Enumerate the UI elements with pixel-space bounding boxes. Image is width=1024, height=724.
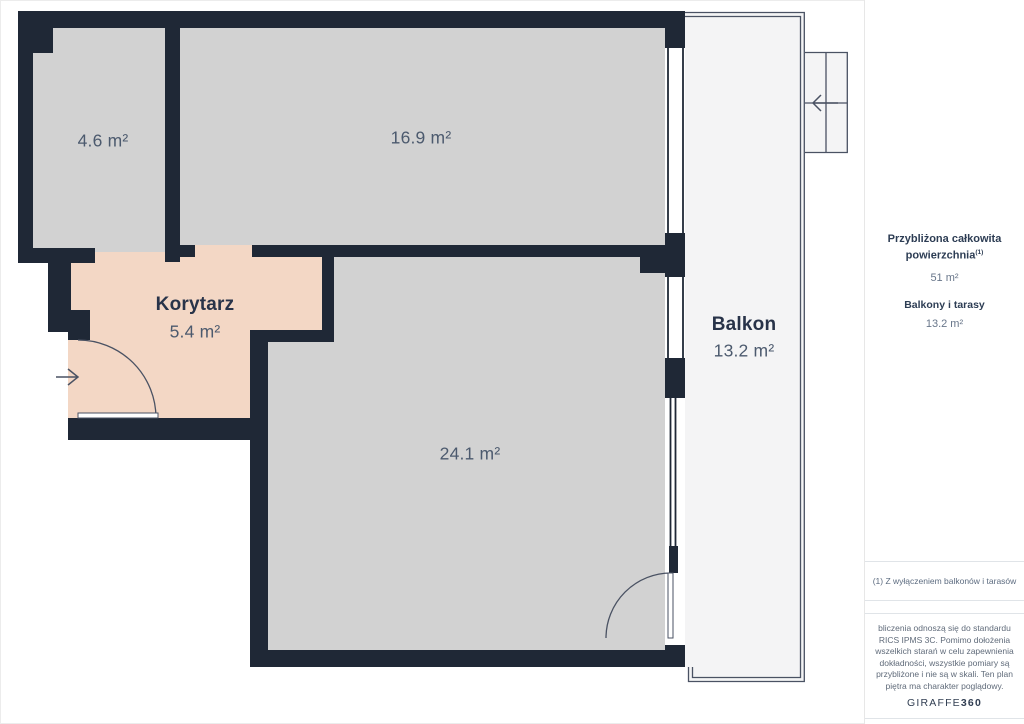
room-name-balkon: Balkon <box>712 314 777 336</box>
floor-plan: 4.6 m² 16.9 m² Korytarz 5.4 m² 24.1 m² B… <box>0 0 864 724</box>
disclaimer-text: bliczenia odnoszą się do standardu RICS … <box>865 623 1024 692</box>
giraffe360-logo: GIRAFFE360 <box>865 697 1024 709</box>
room-label-24-1: 24.1 m² <box>440 444 501 465</box>
room-label-16-9: 16.9 m² <box>391 128 452 149</box>
giraffe360-logo-regular: GIRAFFE <box>907 697 961 709</box>
floor-plan-drawing <box>0 0 864 724</box>
room-label-balkon: 13.2 m² <box>714 341 775 362</box>
giraffe360-logo-bold: 360 <box>961 697 982 709</box>
total-area-footnote-marker: (1) <box>975 249 983 256</box>
floor-plan-page: 4.6 m² 16.9 m² Korytarz 5.4 m² 24.1 m² B… <box>0 0 1024 724</box>
balcony-area-title: Balkony i tarasy <box>865 299 1024 311</box>
window-upper <box>668 48 683 233</box>
footnote-text: (1) Z wyłączeniem balkonów i tarasów <box>873 576 1017 586</box>
room-label-korytarz: 5.4 m² <box>170 322 221 343</box>
total-area-title-text: Przybliżona całkowita powierzchnia <box>888 233 1002 262</box>
info-sidebar: Przybliżona całkowita powierzchnia(1) 51… <box>864 0 1024 724</box>
room-name-korytarz: Korytarz <box>156 294 235 316</box>
total-area-value: 51 m² <box>865 272 1024 284</box>
area-summary: Przybliżona całkowita powierzchnia(1) 51… <box>865 232 1024 330</box>
disclaimer-box: bliczenia odnoszą się do standardu RICS … <box>865 613 1024 719</box>
window-sliding-panel <box>671 398 676 546</box>
room-label-4-6: 4.6 m² <box>78 131 129 152</box>
balcony-area-value: 13.2 m² <box>865 318 1024 330</box>
window-middle <box>668 277 683 358</box>
balcony-door-leaf <box>668 573 673 638</box>
footnote-box: (1) Z wyłączeniem balkonów i tarasów <box>865 561 1024 601</box>
total-area-title: Przybliżona całkowita powierzchnia(1) <box>882 232 1008 263</box>
entrance-door-leaf <box>78 413 158 418</box>
